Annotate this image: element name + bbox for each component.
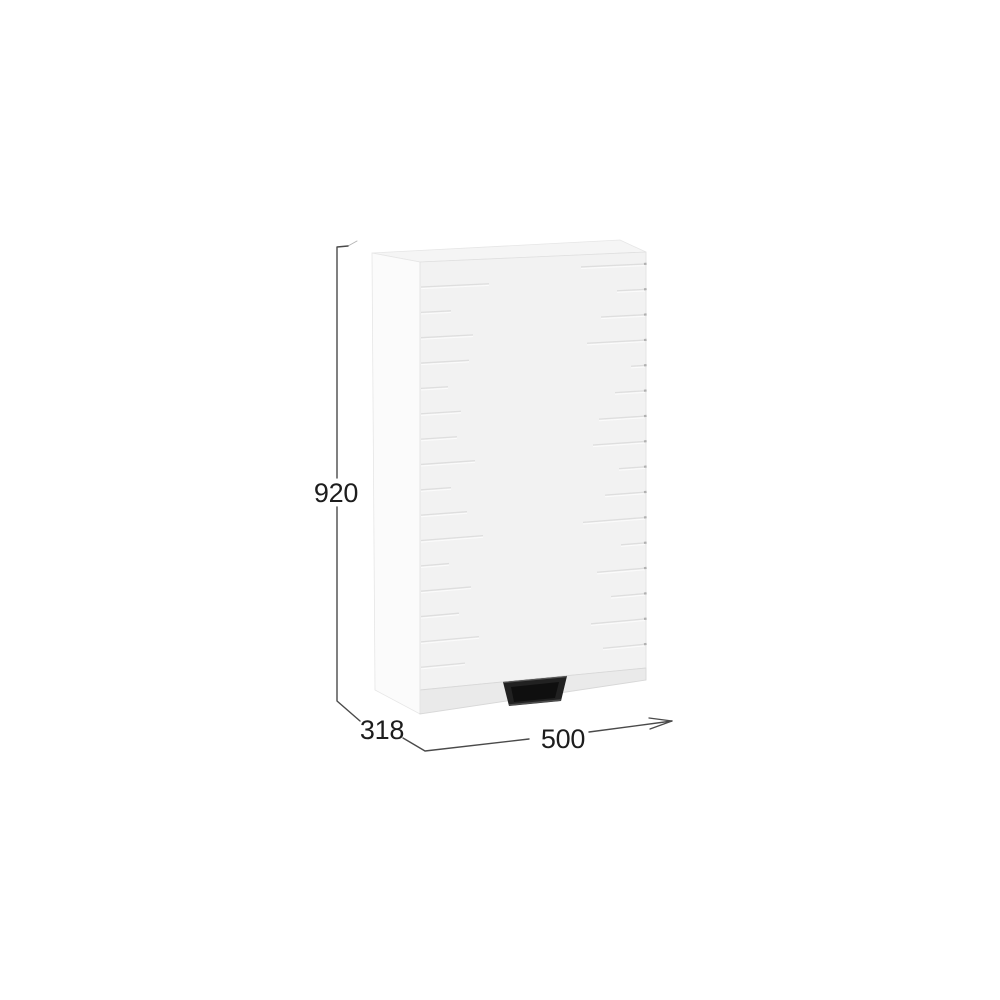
height-dimension-line-lower	[337, 507, 360, 721]
cabinet	[372, 240, 647, 714]
height-dimension-line-upper	[337, 246, 348, 478]
width-dimension-label: 500	[541, 724, 585, 754]
drawing-svg: 920 318 500	[0, 0, 1000, 1000]
width-dimension-line	[589, 721, 672, 732]
depth-dimension-label: 318	[360, 715, 404, 745]
height-dimension-label: 920	[314, 478, 358, 508]
cabinet-side-panel	[372, 253, 420, 714]
product-dimension-drawing: 920 318 500	[0, 0, 1000, 1000]
groove-line	[631, 365, 645, 366]
height-leader-tick	[348, 241, 357, 246]
depth-width-dimension-line	[403, 738, 529, 751]
